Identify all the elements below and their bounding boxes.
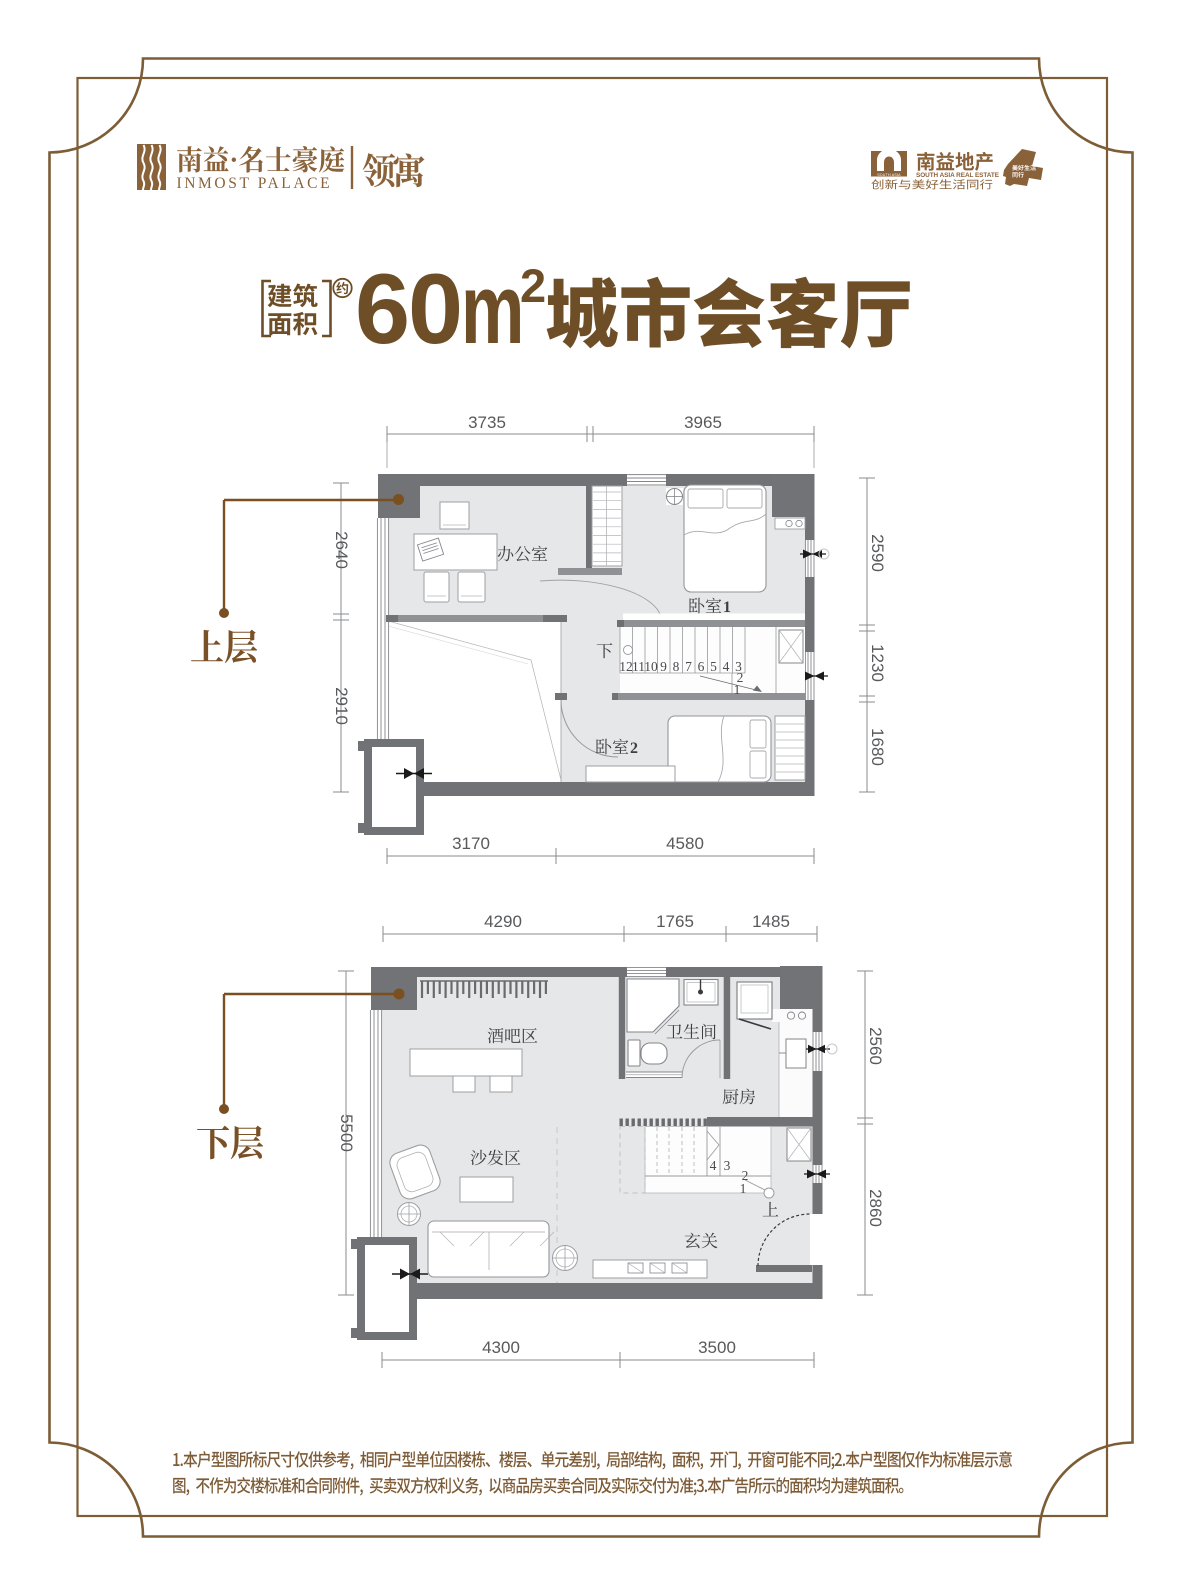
svg-text:4: 4 <box>710 1158 717 1173</box>
svg-text:1230: 1230 <box>868 644 887 682</box>
svg-text:11: 11 <box>632 659 645 674</box>
svg-text:1485: 1485 <box>752 912 790 931</box>
svg-text:2910: 2910 <box>332 687 351 725</box>
svg-text:INMOST PALACE: INMOST PALACE <box>177 175 333 192</box>
svg-text:3735: 3735 <box>468 413 506 432</box>
svg-text:1765: 1765 <box>656 912 694 931</box>
svg-text:10: 10 <box>644 659 658 674</box>
svg-text:5500: 5500 <box>337 1114 356 1152</box>
svg-text:2560: 2560 <box>866 1027 885 1065</box>
svg-text:1: 1 <box>723 599 731 616</box>
svg-text:8: 8 <box>673 659 680 674</box>
svg-text:4580: 4580 <box>666 834 704 853</box>
svg-text:1680: 1680 <box>868 728 887 766</box>
svg-text:6: 6 <box>698 659 705 674</box>
svg-text:3: 3 <box>724 1158 731 1173</box>
svg-text:SOUTH ASIA REAL ESTATE: SOUTH ASIA REAL ESTATE <box>916 172 1000 179</box>
svg-text:3965: 3965 <box>684 413 722 432</box>
svg-text:7: 7 <box>685 659 692 674</box>
svg-text:9: 9 <box>660 659 667 674</box>
svg-text:3500: 3500 <box>698 1338 736 1357</box>
svg-text:12: 12 <box>619 659 633 674</box>
svg-text:3170: 3170 <box>452 834 490 853</box>
svg-text:4300: 4300 <box>482 1338 520 1357</box>
svg-text:m: m <box>461 255 524 365</box>
svg-text:4290: 4290 <box>484 912 522 931</box>
svg-text:60: 60 <box>355 253 461 364</box>
svg-text:SOUTH ASIA: SOUTH ASIA <box>877 173 901 177</box>
svg-text:2590: 2590 <box>868 534 887 572</box>
svg-text:2: 2 <box>520 259 546 312</box>
svg-text:1: 1 <box>740 1181 747 1196</box>
svg-text:5: 5 <box>710 659 717 674</box>
svg-text:2: 2 <box>630 740 638 757</box>
svg-text:2640: 2640 <box>332 531 351 569</box>
svg-text:2860: 2860 <box>866 1189 885 1227</box>
svg-text:4: 4 <box>723 659 730 674</box>
